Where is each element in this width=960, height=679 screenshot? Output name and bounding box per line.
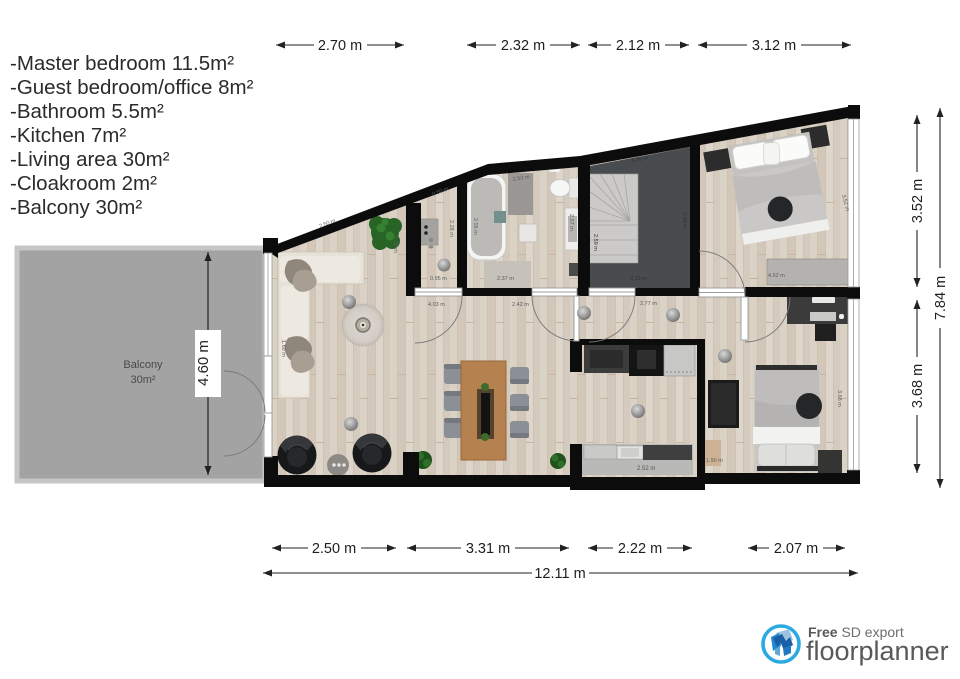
svg-text:2.12 m: 2.12 m [616,38,660,54]
svg-text:0.95 m: 0.95 m [430,276,447,282]
svg-text:Balcony: Balcony [123,359,163,371]
svg-text:3.68 m: 3.68 m [910,364,926,408]
svg-text:2.28 m: 2.28 m [448,220,454,237]
svg-text:1.00 m: 1.00 m [392,236,398,253]
svg-text:-Cloakroom 2m²: -Cloakroom 2m² [10,172,157,195]
svg-text:3.68 m: 3.68 m [836,390,842,407]
svg-text:3.52 m: 3.52 m [910,179,926,223]
svg-text:2.77 m: 2.77 m [640,301,657,307]
svg-text:floorplanner: floorplanner [806,636,949,666]
svg-text:-Master bedroom 11.5m²: -Master bedroom 11.5m² [10,52,234,75]
svg-text:2.42 m: 2.42 m [512,302,529,308]
svg-text:3.12 m: 3.12 m [752,38,796,54]
svg-text:3.31 m: 3.31 m [466,541,510,557]
svg-text:2.22 m: 2.22 m [618,541,662,557]
svg-text:2.07 m: 2.07 m [774,541,818,557]
svg-text:-Guest bedroom/office 8m²: -Guest bedroom/office 8m² [10,76,254,99]
svg-text:2.32 m: 2.32 m [501,38,545,54]
svg-text:30m²: 30m² [130,374,155,386]
svg-text:2.55 m: 2.55 m [472,218,478,235]
svg-text:2.70 m: 2.70 m [318,38,362,54]
svg-text:2.57 m: 2.57 m [568,214,574,231]
svg-text:4.60 m: 4.60 m [195,340,212,386]
svg-text:2.52 m: 2.52 m [637,466,655,472]
svg-text:7.84 m: 7.84 m [933,276,949,320]
svg-text:-Living area 30m²: -Living area 30m² [10,148,170,171]
svg-text:-Balcony 30m²: -Balcony 30m² [10,196,142,219]
svg-text:2.03 m: 2.03 m [681,212,687,229]
svg-text:4.03 m: 4.03 m [428,302,445,308]
svg-text:2.59 m: 2.59 m [592,234,598,251]
svg-text:2.50 m: 2.50 m [312,541,356,557]
svg-text:4.52 m: 4.52 m [768,273,785,279]
svg-text:1.60 m: 1.60 m [280,340,286,357]
svg-text:-Bathroom 5.5m²: -Bathroom 5.5m² [10,100,164,123]
svg-text:-Kitchen 7m²: -Kitchen 7m² [10,124,126,147]
svg-text:3.13 m: 3.13 m [630,276,647,282]
svg-text:12.11 m: 12.11 m [534,566,585,582]
svg-text:1.90 m: 1.90 m [706,458,723,464]
svg-text:2.37 m: 2.37 m [497,276,514,282]
